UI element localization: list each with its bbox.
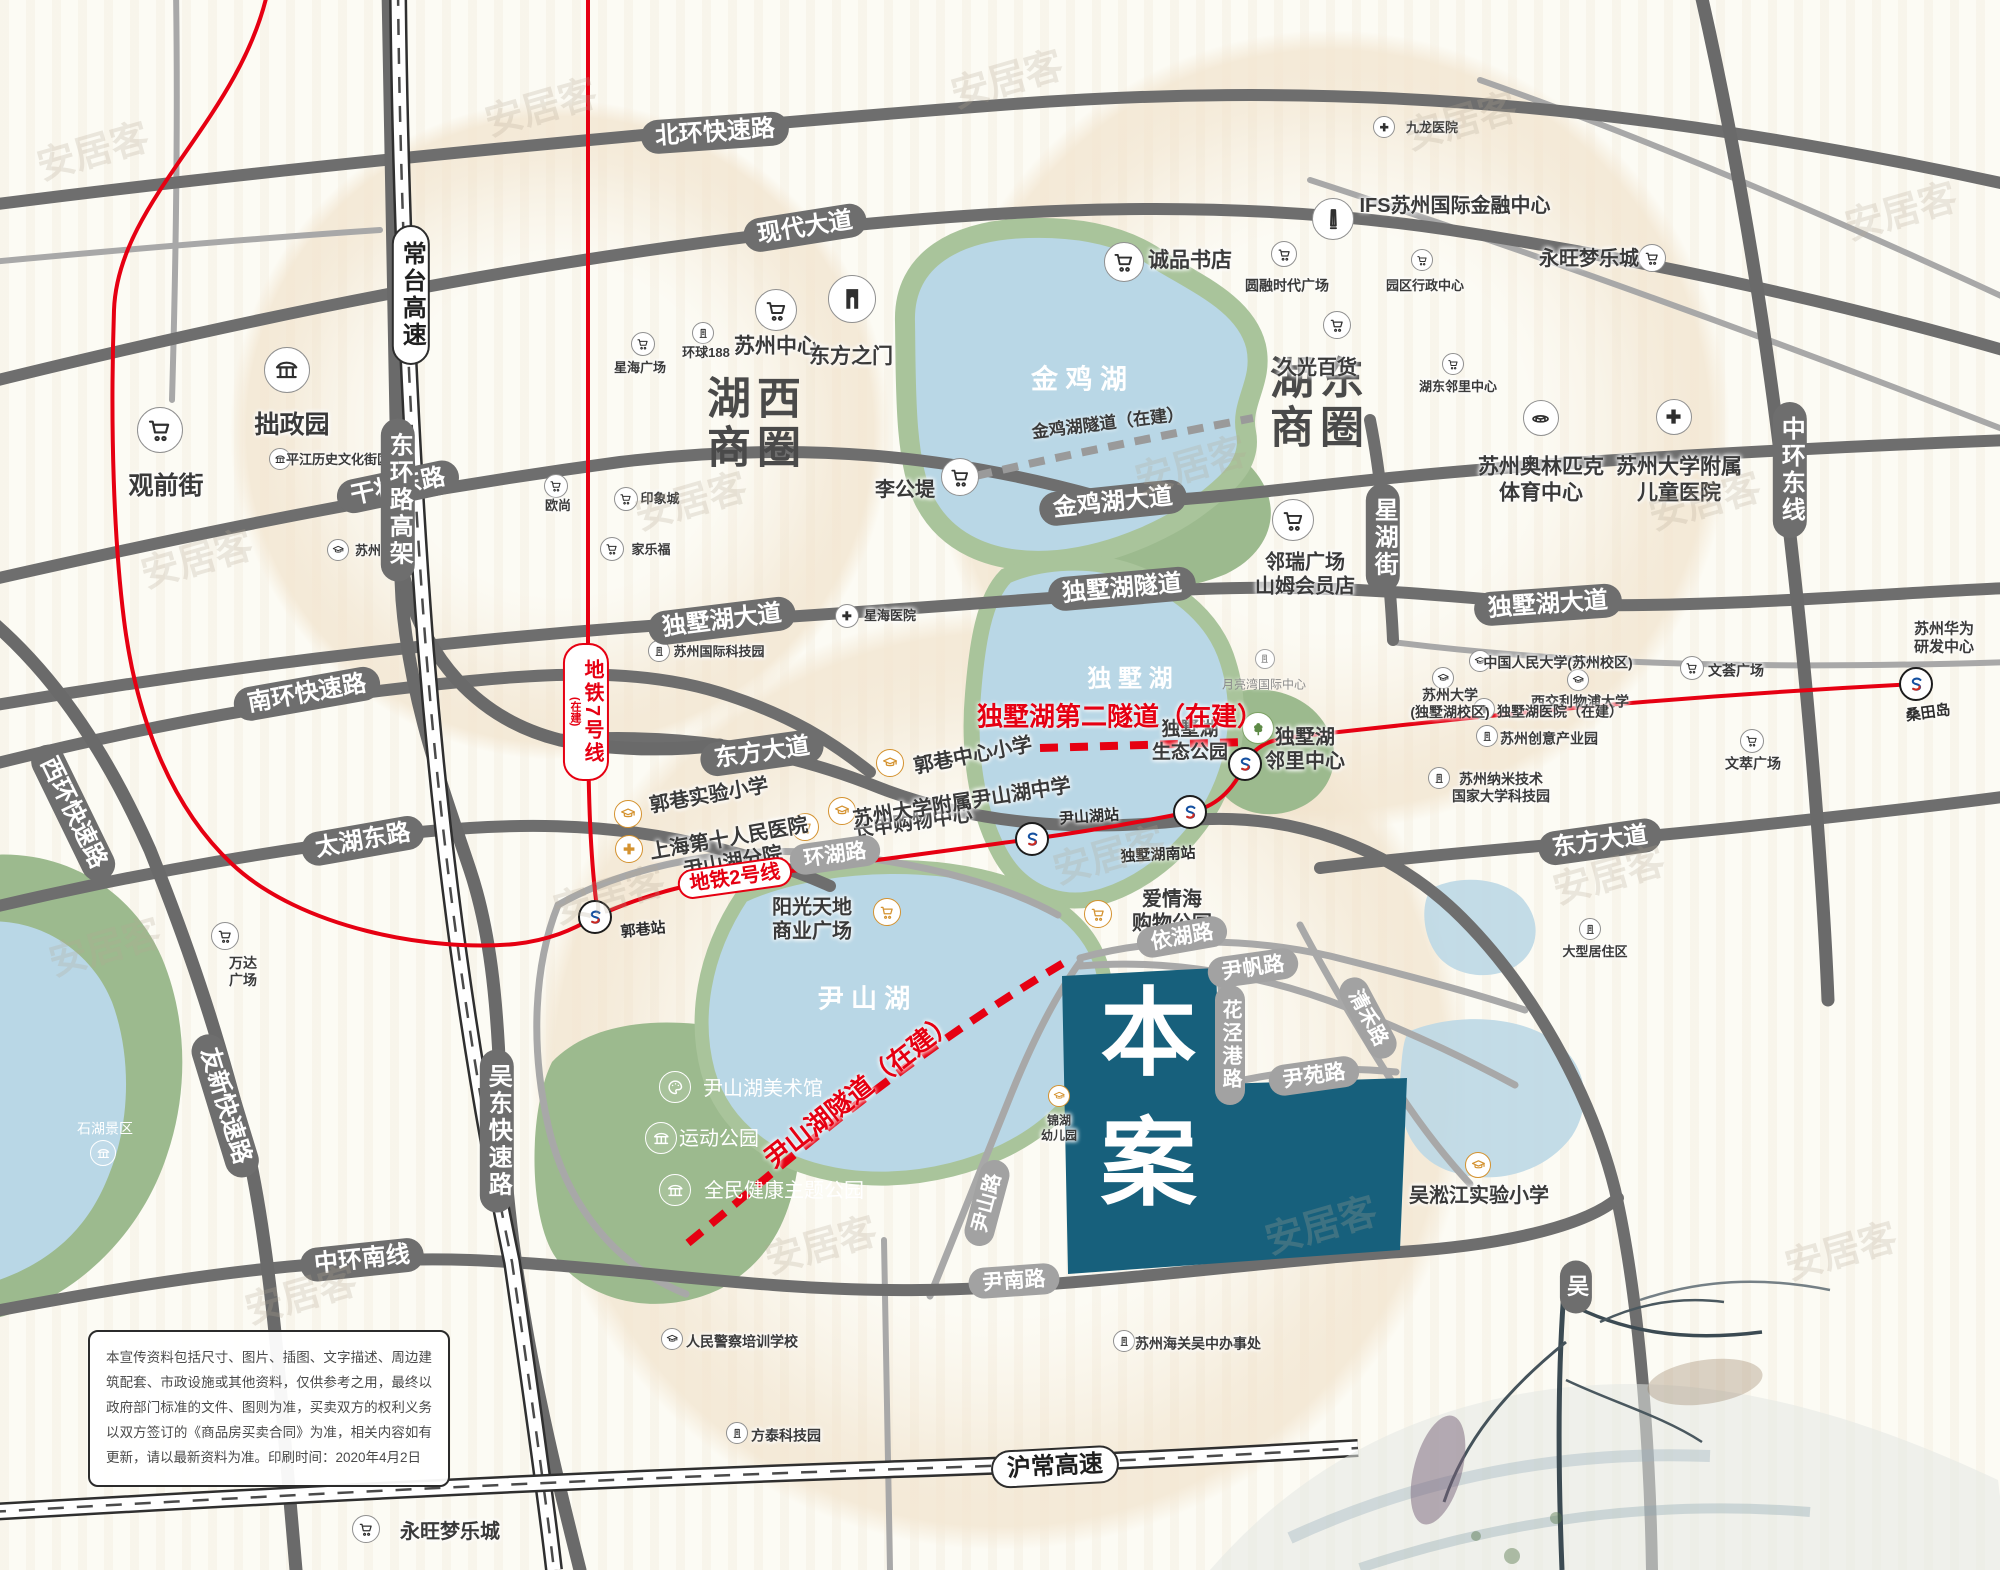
cap-icon bbox=[614, 800, 642, 828]
cart-icon bbox=[873, 898, 901, 926]
poi-label: 星海医院 bbox=[864, 608, 916, 624]
bldg-icon bbox=[1113, 1330, 1135, 1352]
poi-label: 月亮湾国际中心 bbox=[1222, 678, 1306, 693]
poi-label: 环球188 bbox=[682, 345, 730, 361]
poi-label: 苏州纳米技术国家大学科技园 bbox=[1452, 771, 1550, 805]
district-label: 湖西商圈 bbox=[707, 375, 807, 474]
cart-icon bbox=[1272, 499, 1314, 541]
tower-icon bbox=[1312, 198, 1354, 240]
poi-label: 锦湖幼儿园 bbox=[1041, 1113, 1077, 1142]
cart-icon bbox=[1104, 242, 1144, 282]
poi-label: 苏州大学(独墅湖校区) bbox=[1410, 687, 1489, 721]
lake-label: 独 墅 湖 bbox=[1087, 659, 1172, 694]
cart-icon bbox=[1680, 656, 1704, 680]
poi-label: 永旺梦乐城 bbox=[400, 1520, 500, 1544]
bldg-icon bbox=[1579, 918, 1601, 940]
road-label: 花泾港路 bbox=[1215, 985, 1245, 1105]
cart-icon bbox=[1084, 900, 1112, 928]
poi-label: 湖东邻里中心 bbox=[1419, 379, 1497, 395]
poi-label: 观前街 bbox=[128, 471, 203, 502]
poi-label: 万达广场 bbox=[229, 955, 257, 989]
gate-icon bbox=[828, 275, 876, 323]
poi-label: 星海广场 bbox=[614, 360, 666, 376]
road-label: 常台高速 bbox=[392, 225, 430, 365]
bldg-icon bbox=[692, 322, 714, 344]
pav-icon bbox=[90, 1140, 116, 1166]
bldg-icon bbox=[726, 1422, 748, 1444]
road-label: 星湖街 bbox=[1366, 484, 1400, 593]
site-marker-label: 本案 bbox=[1091, 982, 1187, 1242]
poi-label: 苏州奥林匹克体育中心 bbox=[1478, 454, 1604, 505]
poi-label: 独墅湖医院（在建） bbox=[1497, 703, 1623, 720]
poi-label: 苏州中心 bbox=[734, 334, 818, 360]
cross-icon bbox=[1373, 116, 1395, 138]
cart-icon bbox=[137, 407, 183, 453]
poi-label: 李公堤 bbox=[875, 478, 935, 502]
metro-station-icon bbox=[1173, 795, 1207, 829]
poi-label: 家乐福 bbox=[631, 542, 670, 558]
cart-icon bbox=[211, 922, 239, 950]
cap-icon bbox=[1465, 1152, 1491, 1178]
poi-label: 苏州华为研发中心 bbox=[1914, 621, 1974, 658]
cart-icon bbox=[352, 1515, 380, 1543]
pav-icon bbox=[264, 347, 310, 393]
cart-icon bbox=[631, 332, 655, 356]
pav-icon bbox=[659, 1174, 691, 1206]
cart-icon bbox=[544, 474, 568, 498]
poi-label: 文荟广场 bbox=[1708, 662, 1764, 679]
poi-label: 阳光天地商业广场 bbox=[772, 896, 852, 945]
poi-label: IFS苏州国际金融中心 bbox=[1359, 194, 1550, 218]
poi-label: 圆融时代广场 bbox=[1245, 277, 1329, 294]
cross-icon bbox=[835, 604, 859, 628]
poi-label: 石湖景区 bbox=[77, 1120, 133, 1137]
cap-icon bbox=[1567, 669, 1589, 691]
lake-label: 金 鸡 湖 bbox=[1031, 358, 1127, 397]
poi-label: 苏州海关吴中办事处 bbox=[1135, 1335, 1261, 1352]
poi-label: 东方之门 bbox=[809, 344, 893, 370]
metro-station-icon bbox=[1899, 667, 1933, 701]
poi-label: 运动公园 bbox=[679, 1127, 759, 1151]
road-beihuan bbox=[0, 95, 2000, 205]
cart-icon bbox=[755, 289, 797, 331]
road-label: 吴东快速路 bbox=[480, 1050, 514, 1213]
road-label: 尹南路 bbox=[968, 1262, 1061, 1299]
poi-label: 园区行政中心 bbox=[1386, 278, 1464, 294]
poi-label: 方泰科技园 bbox=[751, 1427, 821, 1444]
cart-icon bbox=[1271, 241, 1297, 267]
poi-label: 中国人民大学(苏州校区) bbox=[1483, 654, 1632, 671]
metro-line-label: 地铁7号线(在建) bbox=[563, 643, 609, 781]
poi-label: 全民健康主题公园 bbox=[704, 1179, 864, 1203]
metro-station-icon bbox=[1015, 822, 1049, 856]
cart-icon bbox=[1740, 729, 1764, 753]
disclaimer-text: 本宣传资料包括尺寸、图片、插图、文字描述、周边建筑配套、市政设施或其他资料，仅供… bbox=[106, 1350, 432, 1465]
cap-icon bbox=[876, 749, 904, 777]
cap-icon bbox=[327, 539, 349, 561]
cart-icon bbox=[941, 458, 979, 496]
cart-icon bbox=[1442, 353, 1464, 375]
cap-icon bbox=[1432, 667, 1454, 689]
poi-label: 独墅湖邻里中心 bbox=[1265, 726, 1345, 775]
metro-station-icon bbox=[1228, 747, 1262, 781]
road-label-sub: (在建) bbox=[569, 659, 581, 765]
location-map: 安居客安居客安居客安居客安居客安居客安居客安居客安居客安居客安居客安居客安居客安… bbox=[0, 0, 2000, 1570]
pav-icon bbox=[645, 1122, 677, 1154]
poi-label: 诚品书店 bbox=[1148, 248, 1232, 274]
bldg-icon bbox=[1428, 767, 1450, 789]
bldg-icon bbox=[1476, 725, 1498, 747]
poi-label: 邻瑞广场山姆会员店 bbox=[1255, 551, 1355, 600]
poi-label: 平江历史文化街区 bbox=[286, 452, 390, 468]
poi-label: 永旺梦乐城 bbox=[1539, 247, 1639, 271]
cap-icon bbox=[1048, 1085, 1070, 1107]
poi-label: 人民警察培训学校 bbox=[686, 1333, 798, 1350]
pal-icon bbox=[659, 1071, 691, 1103]
tunnel-label: 独墅湖第二隧道（在建） bbox=[977, 703, 1263, 732]
poi-label: 尹山湖美术馆 bbox=[703, 1077, 823, 1101]
cart-icon bbox=[600, 537, 624, 561]
poi-label: 久光百货 bbox=[1277, 356, 1357, 380]
stad-icon bbox=[1523, 400, 1559, 436]
poi-label: 大型居住区 bbox=[1562, 944, 1627, 960]
disclaimer-box: 本宣传资料包括尺寸、图片、插图、文字描述、周边建筑配套、市政设施或其他资料，仅供… bbox=[88, 1330, 450, 1487]
road-label: 中环东线 bbox=[1773, 402, 1807, 538]
poi-label: 文萃广场 bbox=[1725, 755, 1781, 772]
cart-icon bbox=[1323, 311, 1351, 339]
road-label: 沪常高速 bbox=[990, 1444, 1120, 1489]
road-label: 东环路高架 bbox=[381, 419, 415, 582]
cart-icon bbox=[1411, 249, 1433, 271]
lake-label: 尹 山 湖 bbox=[818, 979, 910, 1016]
road-label: 吴 bbox=[1560, 1261, 1592, 1314]
poi-label: 苏州国际科技园 bbox=[673, 644, 764, 660]
cross-icon bbox=[1656, 399, 1692, 435]
poi-label: 苏州创意产业园 bbox=[1500, 730, 1598, 747]
poi-label: 吴淞江实验小学 bbox=[1409, 1184, 1549, 1208]
bldg-icon bbox=[1255, 649, 1275, 669]
cap-icon bbox=[661, 1328, 683, 1350]
poi-label: 欧尚 bbox=[545, 498, 571, 514]
cart-icon bbox=[1638, 244, 1666, 272]
poi-label: 拙政园 bbox=[254, 410, 329, 441]
